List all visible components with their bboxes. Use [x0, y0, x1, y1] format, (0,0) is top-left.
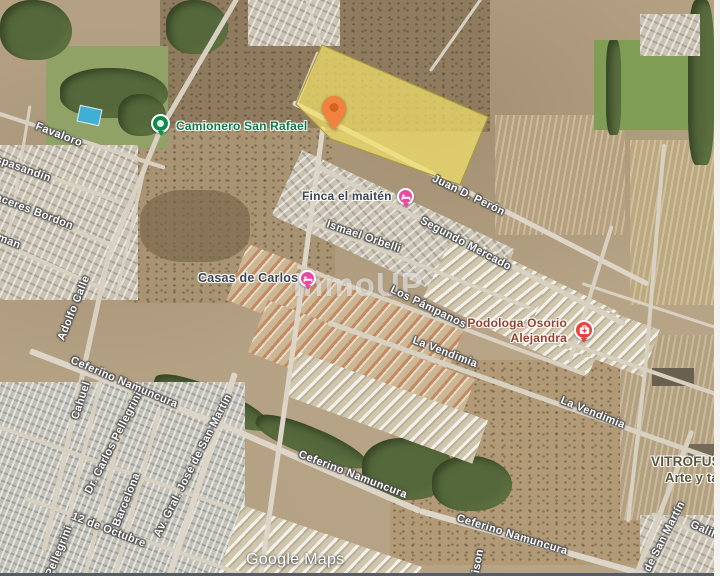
urban-block: [248, 0, 340, 46]
trees: [432, 456, 512, 511]
poi-label[interactable]: Podologa Osorio Alejandra: [455, 316, 567, 346]
map-canvas[interactable]: InmoUP Favaloro spasandín aceres Bordon …: [0, 0, 720, 576]
street-label: ison: [470, 548, 486, 574]
poi-label[interactable]: VITROFUSIÓN Arte y taller: [651, 454, 720, 486]
google-maps-watermark[interactable]: Google Maps: [246, 551, 344, 569]
medical-kit-icon: [579, 325, 590, 335]
poi-label[interactable]: Finca el maitén: [302, 189, 392, 203]
bed-icon: [303, 275, 313, 283]
poi-label[interactable]: Casas de Carlos: [198, 271, 298, 285]
poi-marker-green-dot[interactable]: [151, 114, 170, 133]
poi-marker-health[interactable]: [574, 320, 594, 340]
poi-label-line2: Alejandra: [455, 331, 567, 346]
trees: [606, 40, 621, 135]
poi-marker-lodging[interactable]: [299, 270, 316, 287]
poi-label-line1: VITROFUSIÓN: [651, 454, 720, 470]
green-dot-icon: [157, 120, 164, 127]
poi-marker-lodging[interactable]: [397, 188, 414, 205]
bed-icon: [401, 193, 411, 201]
pin-tail: [403, 203, 409, 208]
urban-block: [640, 14, 700, 56]
trees: [0, 0, 72, 60]
poi-label-line1: Podologa Osorio: [455, 316, 567, 331]
property-pin[interactable]: [322, 96, 346, 130]
map-right-edge: [714, 0, 720, 576]
poi-label-line2: Arte y taller: [665, 470, 720, 486]
pin-tail: [158, 131, 164, 136]
pin-tail: [305, 285, 311, 290]
poi-label[interactable]: Camionero San Rafael: [176, 119, 307, 133]
field-patch: [140, 190, 250, 262]
pin-tail: [581, 338, 587, 343]
